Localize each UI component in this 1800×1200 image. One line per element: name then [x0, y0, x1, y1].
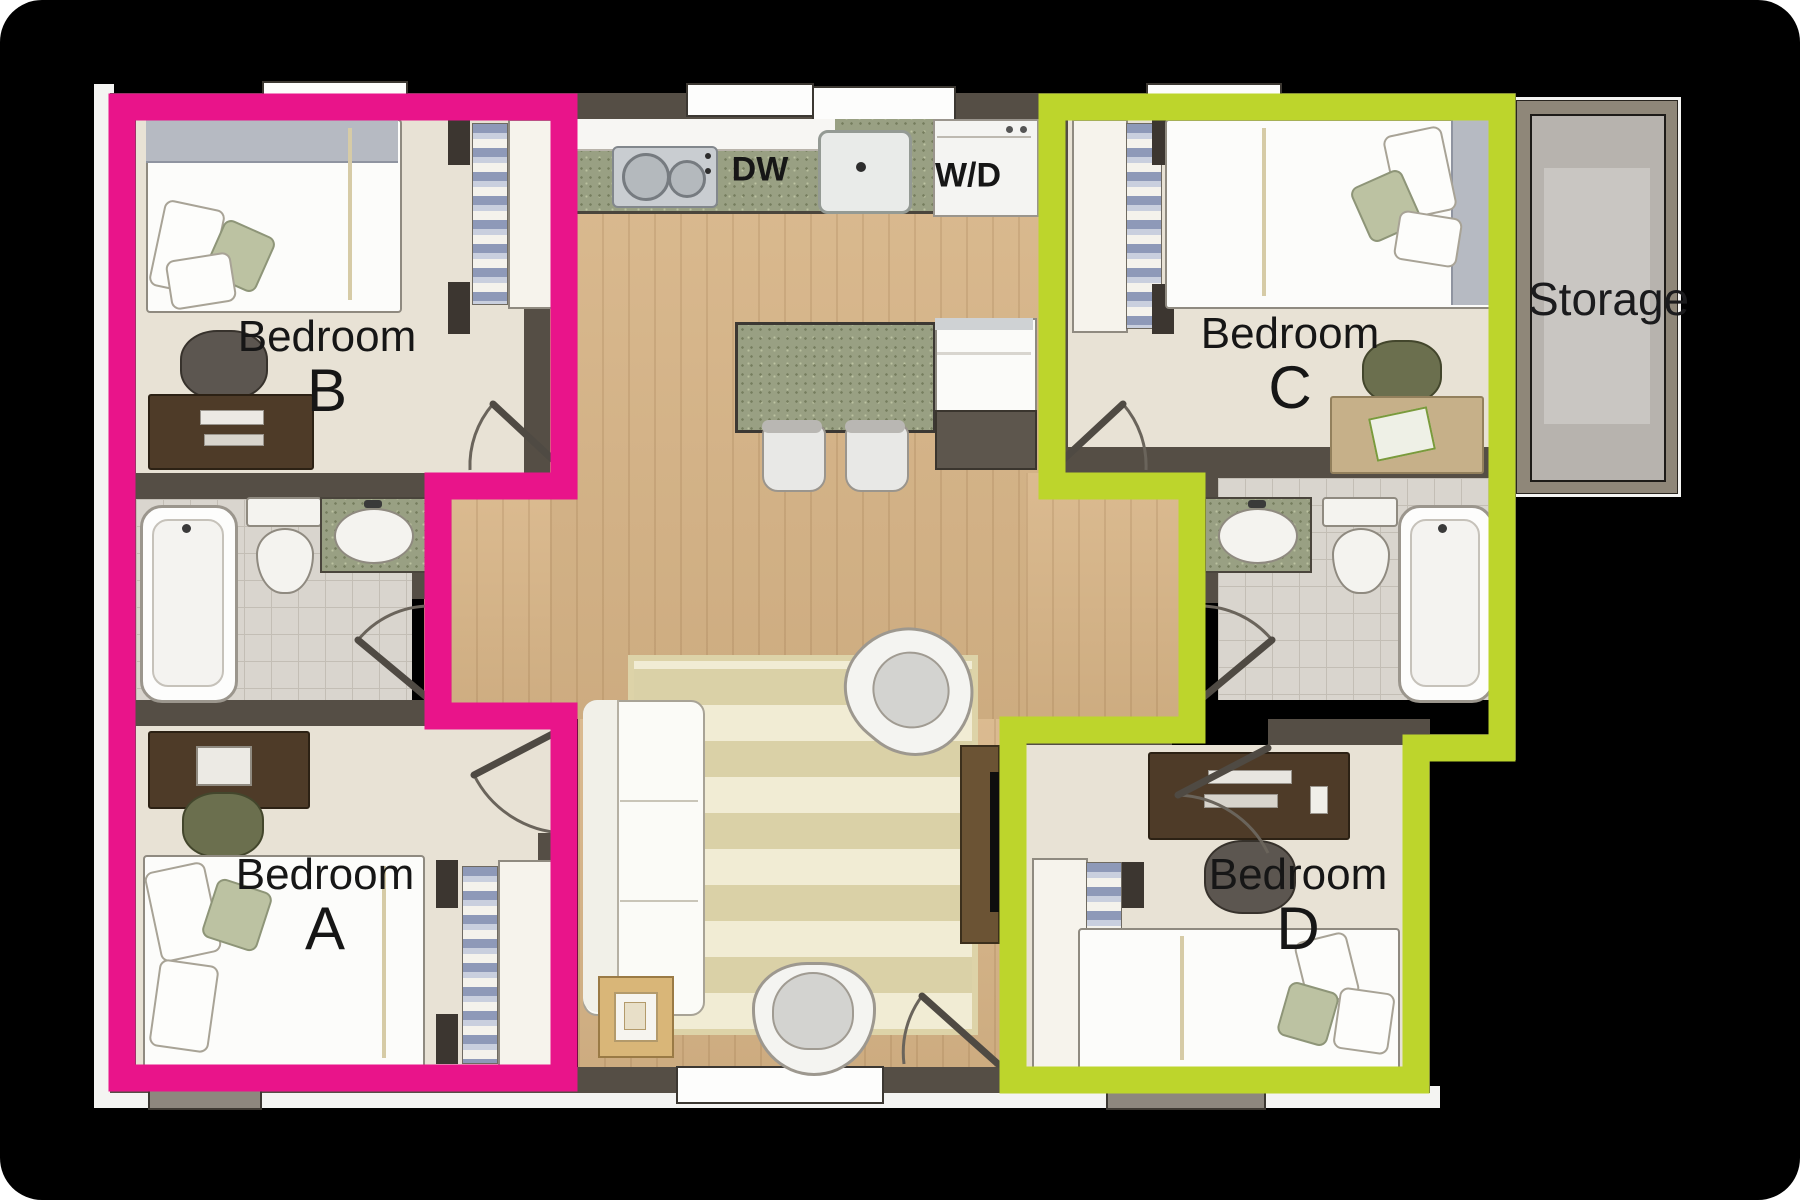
bedroom-b-name: Bedroom — [238, 315, 417, 360]
bedroom-a-label: Bedroom A — [236, 853, 415, 959]
bedroom-b-letter: B — [238, 360, 417, 421]
bedroom-d-label: Bedroom D — [1209, 853, 1388, 959]
bedroom-b-label: Bedroom B — [238, 315, 417, 421]
outline-overlay — [0, 0, 1800, 1200]
dishwasher-label: DW — [732, 151, 789, 190]
bedroom-c-name: Bedroom — [1201, 312, 1380, 357]
bedroom-a-name: Bedroom — [236, 853, 415, 898]
bedroom-d-name: Bedroom — [1209, 853, 1388, 898]
washer-dryer-label: W/D — [935, 157, 1001, 196]
floor-plan: Bedroom B Bedroom A Bedroom C Bedroom D … — [0, 0, 1800, 1200]
bedroom-a-letter: A — [236, 898, 415, 959]
bedroom-c-letter: C — [1201, 357, 1380, 418]
storage-label: Storage — [1528, 272, 1689, 326]
bedroom-c-label: Bedroom C — [1201, 312, 1380, 418]
bedroom-d-letter: D — [1209, 898, 1388, 959]
